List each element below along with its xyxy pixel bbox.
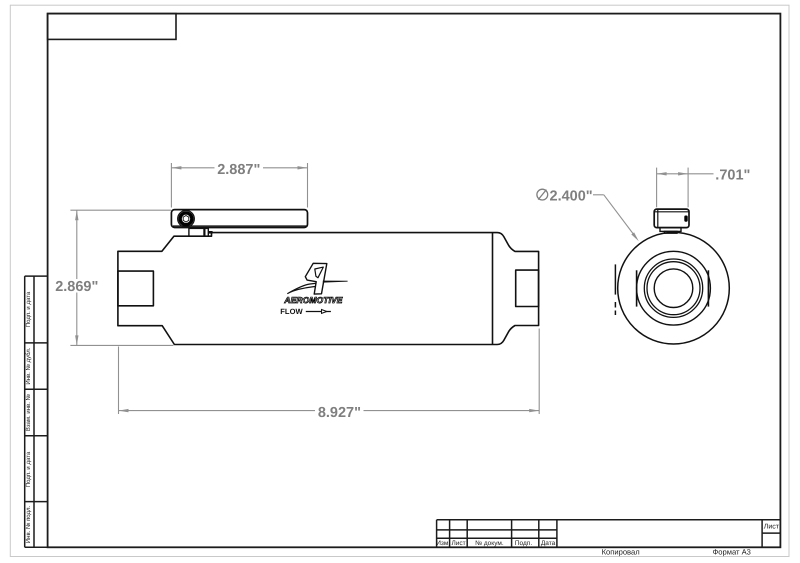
svg-text:FLOW: FLOW <box>280 307 303 316</box>
svg-text:Подп.: Подп. <box>515 540 532 547</box>
svg-text:2.869": 2.869" <box>55 279 98 295</box>
svg-text:Формат А3: Формат А3 <box>713 548 751 557</box>
svg-text:.701": .701" <box>715 168 750 184</box>
svg-text:№ докум.: № докум. <box>475 540 504 547</box>
svg-text:AEROMOTIVE: AEROMOTIVE <box>283 295 342 305</box>
svg-text:Лист: Лист <box>451 540 465 547</box>
svg-text:Копировал: Копировал <box>602 548 640 557</box>
svg-text:Подп. и дата: Подп. и дата <box>25 291 32 327</box>
svg-text:Инв. № дубл.: Инв. № дубл. <box>25 347 32 384</box>
svg-text:Дата: Дата <box>541 540 556 547</box>
svg-text:2.887": 2.887" <box>217 162 260 178</box>
svg-text:8.927": 8.927" <box>318 405 361 421</box>
svg-text:Лист: Лист <box>764 523 780 530</box>
svg-text:Изм.: Изм. <box>436 540 450 547</box>
svg-text:Подп. и дата: Подп. и дата <box>25 451 32 487</box>
svg-text:Инв. № подл.: Инв. № подл. <box>25 505 32 543</box>
svg-text:Взам. инв. №: Взам. инв. № <box>25 393 32 431</box>
svg-text:2.400": 2.400" <box>550 189 593 205</box>
